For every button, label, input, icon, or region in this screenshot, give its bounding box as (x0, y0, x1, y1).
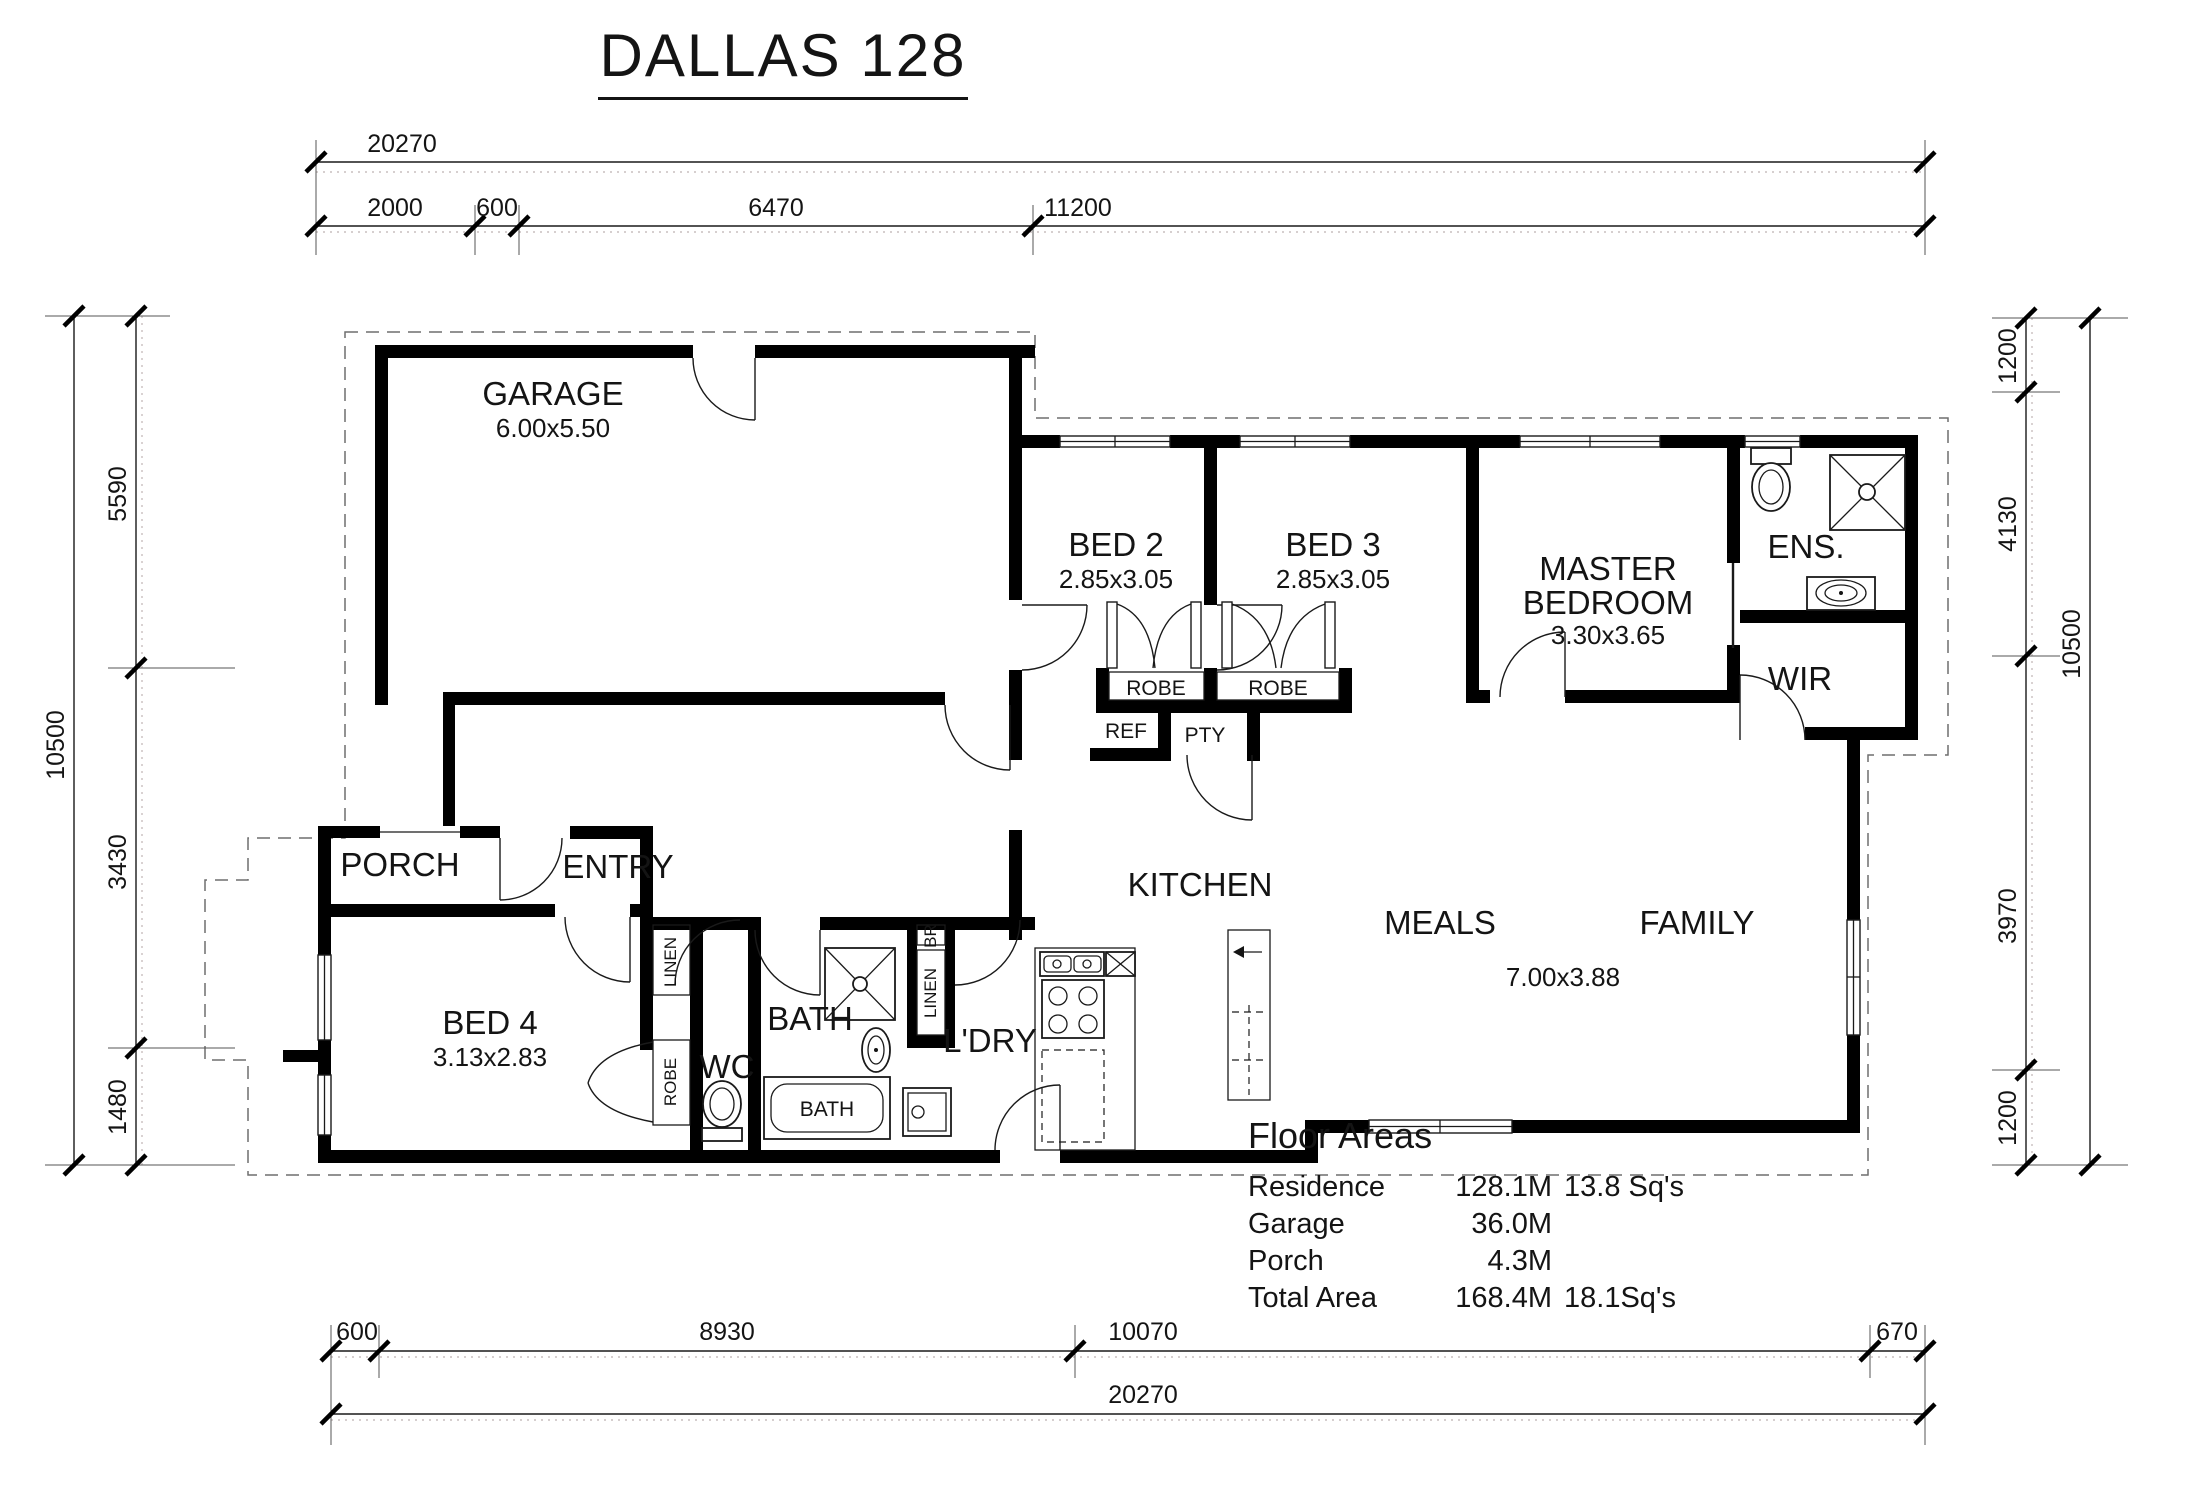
room-labels: GARAGE 6.00x5.50 BED 2 2.85x3.05 BED 3 2… (340, 375, 1844, 1085)
dim-bottom-8930: 8930 (699, 1318, 755, 1346)
title-underline (598, 97, 968, 100)
room-label-wc: WC (700, 1048, 755, 1085)
floor-areas: Floor Areas Residence 128.1M 13.8 Sq's G… (1248, 1115, 1684, 1314)
room-label-entry: ENTRY (562, 848, 673, 885)
room-size-bed4: 3.13x2.83 (433, 1042, 547, 1072)
room-size-bed2: 2.85x3.05 (1059, 564, 1173, 594)
dim-left-3430: 3430 (104, 834, 132, 890)
dimension-ticks (64, 152, 2100, 1424)
plan-title: DALLAS 128 (600, 22, 967, 89)
floor-areas-row-value: 36.0M (1471, 1208, 1552, 1240)
label-robe-bed4: ROBE (661, 1058, 680, 1106)
room-size-garage: 6.00x5.50 (496, 413, 610, 443)
basin-ens (1807, 577, 1875, 610)
dim-left-overall: 10500 (42, 710, 70, 780)
dishwasher-space (1042, 1050, 1104, 1142)
dim-top-2000: 2000 (367, 194, 423, 222)
island-arrow (1233, 946, 1244, 958)
dim-left-5590: 5590 (104, 466, 132, 522)
floor-areas-row-label: Garage (1248, 1208, 1345, 1240)
dim-top-6470: 6470 (748, 194, 804, 222)
floor-plan-canvas: DALLAS 128 (0, 0, 2204, 1506)
floor-areas-row-label: Porch (1248, 1245, 1324, 1277)
toilet-wc (702, 1081, 742, 1141)
dim-right-3970: 3970 (1994, 888, 2022, 944)
floor-areas-row-label: Residence (1248, 1171, 1385, 1203)
floor-areas-row-value: 168.4M (1455, 1282, 1552, 1314)
room-label-master-line2: BEDROOM (1523, 584, 1694, 621)
floor-areas-row-squares: 13.8 Sq's (1564, 1171, 1684, 1203)
dim-bottom-600: 600 (336, 1318, 378, 1346)
room-label-ens: ENS. (1767, 528, 1844, 565)
dim-bottom-10070: 10070 (1108, 1318, 1178, 1346)
shower-ens (1830, 455, 1905, 530)
room-size-bed3: 2.85x3.05 (1276, 564, 1390, 594)
dim-right-overall: 10500 (2058, 609, 2086, 679)
laundry-tub (903, 1088, 951, 1136)
dimension-leaders (45, 140, 2128, 1445)
label-bathtub: BATH (800, 1098, 854, 1121)
toilet-ens (1751, 448, 1791, 511)
basin-bath (862, 1028, 890, 1072)
fixtures (653, 448, 1905, 1150)
label-linen-bath: LINEN (921, 968, 940, 1018)
room-label-ldry: L'DRY (943, 1022, 1037, 1059)
kitchen-bench (1035, 948, 1135, 1150)
room-label-master-line1: MASTER (1539, 550, 1677, 587)
label-ref: REF (1105, 720, 1147, 743)
room-size-master: 3.30x3.65 (1551, 620, 1665, 650)
room-label-bed3: BED 3 (1285, 526, 1380, 563)
dim-right-1200-top: 1200 (1994, 328, 2022, 384)
dim-top-overall: 20270 (367, 130, 437, 158)
room-label-bed2: BED 2 (1068, 526, 1163, 563)
floor-areas-heading: Floor Areas (1248, 1115, 1432, 1156)
floor-areas-row-squares: 18.1Sq's (1564, 1282, 1676, 1314)
room-label-meals: MEALS (1384, 904, 1496, 941)
floor-areas-row-label: Total Area (1248, 1282, 1378, 1314)
room-label-kitchen: KITCHEN (1128, 866, 1273, 903)
dim-right-4130: 4130 (1994, 496, 2022, 552)
floor-plan-drawing: DALLAS 128 (0, 0, 2204, 1506)
floor-areas-row-value: 128.1M (1455, 1171, 1552, 1203)
dim-bottom-670: 670 (1876, 1318, 1918, 1346)
dim-top-11200: 11200 (1044, 194, 1112, 222)
room-label-bath: BATH (767, 1000, 853, 1037)
label-linen-entry: LINEN (661, 937, 680, 987)
room-label-bed4: BED 4 (442, 1004, 537, 1041)
label-pty: PTY (1185, 724, 1226, 747)
room-label-porch: PORCH (340, 846, 459, 883)
room-label-garage: GARAGE (482, 375, 623, 412)
kitchen-island (1228, 930, 1270, 1100)
dimension-labels: 20270 2000 600 6470 11200 10500 5590 343… (42, 130, 2086, 1409)
room-label-wir: WIR (1768, 660, 1832, 697)
room-size-meals-family: 7.00x3.88 (1506, 962, 1620, 992)
label-robe-bed3: ROBE (1248, 677, 1308, 700)
label-robe-bed2: ROBE (1126, 677, 1186, 700)
label-br: BR (921, 924, 940, 948)
dim-right-1200-bottom: 1200 (1994, 1090, 2022, 1146)
room-label-family: FAMILY (1640, 904, 1755, 941)
dim-top-600: 600 (476, 194, 518, 222)
dim-left-1480: 1480 (104, 1079, 132, 1135)
dim-bottom-overall: 20270 (1108, 1381, 1178, 1409)
floor-areas-row-value: 4.3M (1488, 1245, 1552, 1277)
